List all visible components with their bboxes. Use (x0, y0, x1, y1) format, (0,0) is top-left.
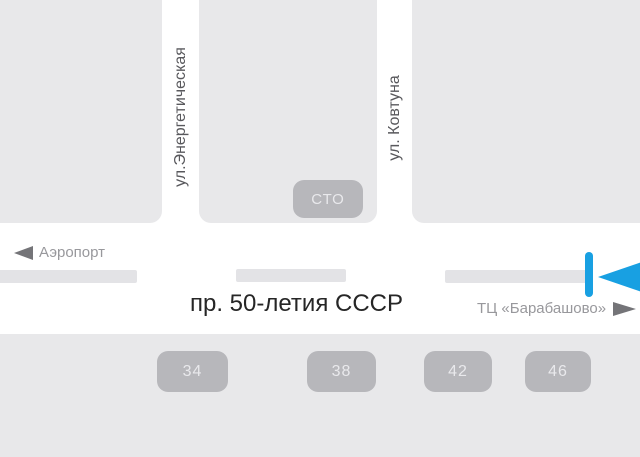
street-label-kovtuna: ул. Ковтуна (386, 75, 404, 160)
building-number-badge: 42 (424, 351, 492, 392)
service-station-badge: СТО (293, 180, 363, 218)
city-block-top-right (412, 0, 640, 223)
city-block-top-left (0, 0, 162, 223)
building-number-badge: 34 (157, 351, 228, 392)
lane-divider-left (0, 270, 137, 283)
location-marker-bar (585, 252, 593, 297)
lane-divider-middle (236, 269, 346, 282)
mall-direction-arrow-icon (613, 302, 636, 316)
main-road-label: пр. 50-летия СССР (190, 290, 403, 318)
lane-divider-right (445, 270, 590, 283)
airport-direction-arrow-icon (14, 246, 33, 260)
street-label-energeticheskaya: ул.Энергетическая (172, 47, 190, 187)
location-marker-arrow-icon (598, 262, 640, 292)
mall-direction-label: ТЦ «Барабашово» (477, 300, 606, 317)
building-number-badge: 46 (525, 351, 591, 392)
building-number-badge: 38 (307, 351, 376, 392)
street-map: ул.Энергетическая ул. Ковтуна СТО Аэропо… (0, 0, 640, 457)
airport-direction-label: Аэропорт (39, 244, 105, 261)
